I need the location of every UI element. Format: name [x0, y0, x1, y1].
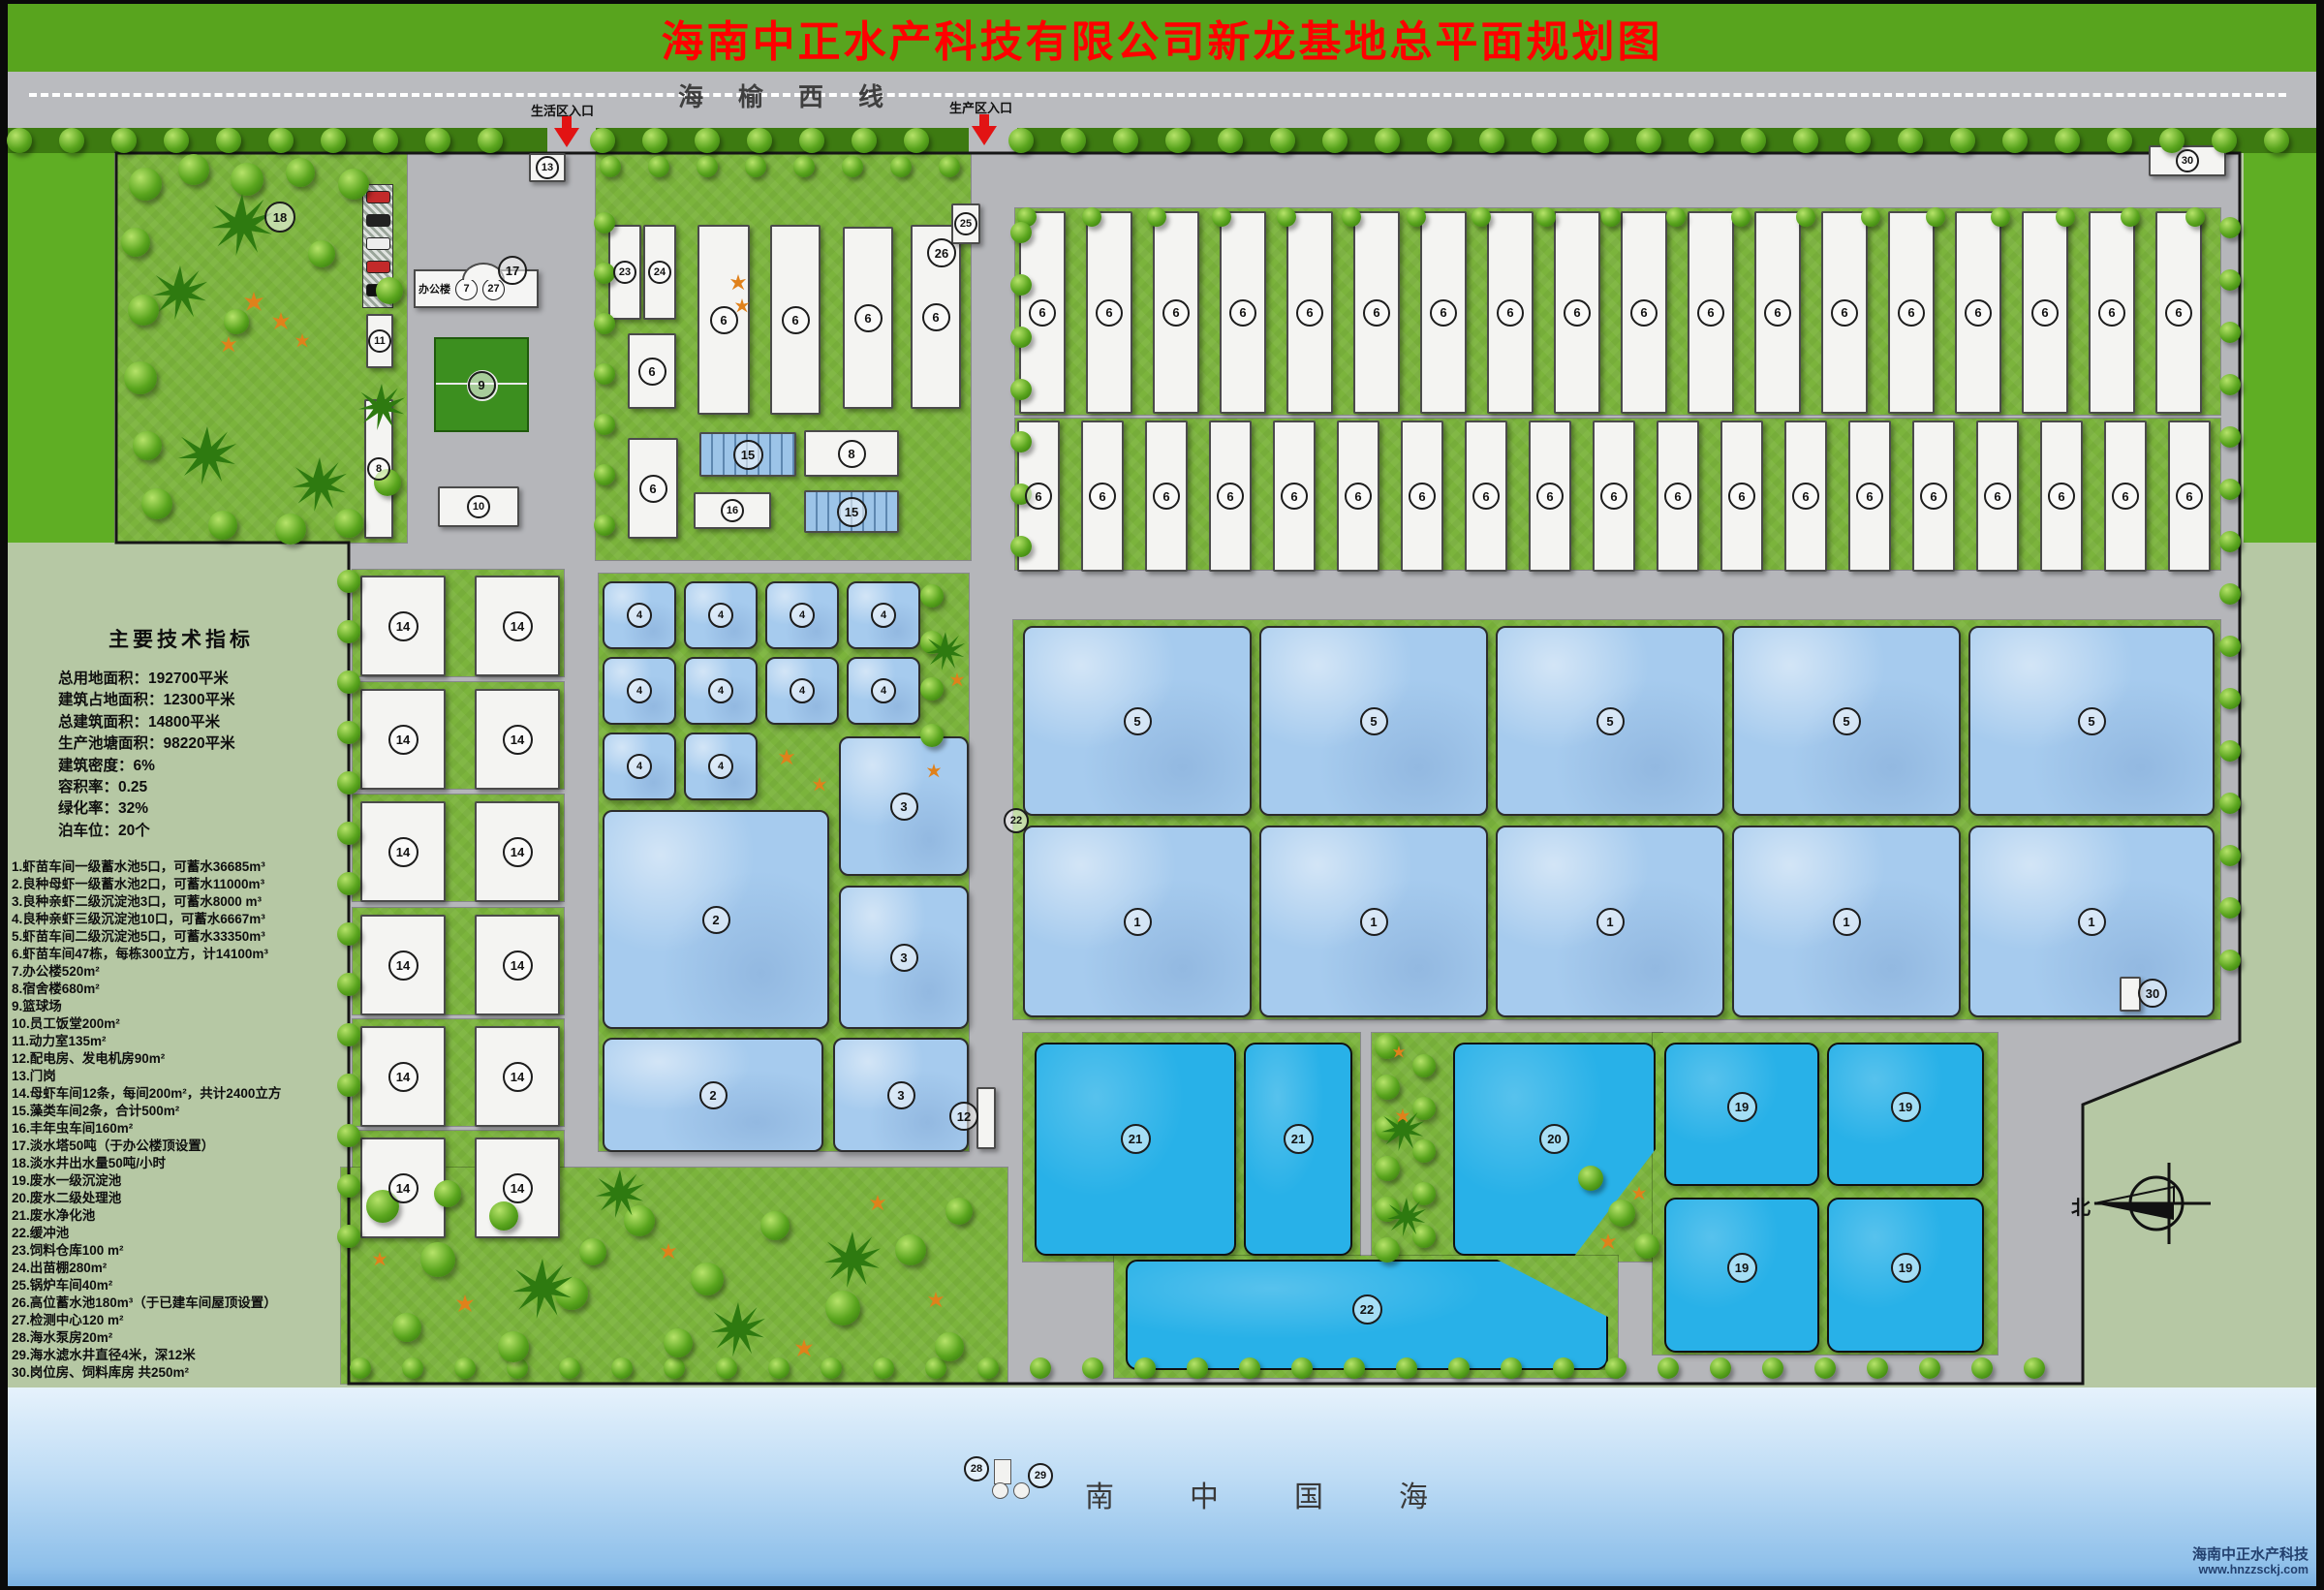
tree-icon — [1010, 327, 1032, 348]
tree-icon — [7, 128, 32, 153]
tree-icon — [664, 1328, 693, 1357]
tree-icon — [2219, 531, 2241, 552]
tree-icon — [1375, 1075, 1400, 1100]
entrance-left-arrow-icon — [554, 128, 579, 160]
tree-icon — [1501, 1357, 1522, 1379]
tree-icon — [2185, 207, 2205, 227]
tree-icon — [1396, 1357, 1417, 1379]
tree-icon — [594, 263, 615, 284]
feature-badge-1: 1 — [2078, 908, 2106, 936]
tree-icon — [1412, 1182, 1436, 1205]
feature-badge-4: 4 — [627, 678, 652, 703]
feature-badge-6: 6 — [1296, 299, 1323, 327]
feature-badge-3: 3 — [890, 793, 918, 821]
feature-badge-14: 14 — [388, 837, 418, 867]
compass-icon — [2073, 1155, 2218, 1252]
feature-badge-14: 14 — [388, 725, 418, 755]
tree-icon — [1950, 128, 1975, 153]
tree-icon — [59, 128, 84, 153]
feature-badge-30: 30 — [2138, 979, 2167, 1008]
tree-icon — [1291, 1357, 1313, 1379]
tree-icon — [2212, 128, 2237, 153]
tree-icon — [745, 156, 766, 177]
tech-spec-line: 总建筑面积：14800平米 — [58, 712, 349, 733]
feature-badge-9: 9 — [468, 371, 496, 399]
feature-badge-2: 2 — [702, 906, 730, 934]
tree-icon — [920, 724, 944, 747]
page-title: 海南中正水产科技有限公司新龙基地总平面规划图 — [662, 7, 1663, 69]
legend-item: 25.锅炉车间40m² — [12, 1277, 349, 1294]
feature-badge-14: 14 — [388, 611, 418, 641]
tree-icon — [425, 128, 450, 153]
feature-badge-6: 6 — [1497, 299, 1524, 327]
feature-badge-19: 19 — [1891, 1092, 1921, 1122]
tree-icon — [1845, 128, 1871, 153]
feature-badge-5: 5 — [1833, 707, 1861, 735]
feature-badge-4: 4 — [708, 603, 733, 628]
legend-item: 14.母虾车间12条，每间200m²，共计2400立方 — [12, 1085, 349, 1103]
tree-icon — [1010, 274, 1032, 296]
tree-icon — [1601, 207, 1621, 227]
feature-badge-6: 6 — [1856, 483, 1883, 510]
tree-icon — [1147, 207, 1166, 227]
tree-icon — [821, 1357, 842, 1379]
feature-badge-6: 6 — [1764, 299, 1791, 327]
feature-badge-6: 6 — [1029, 299, 1056, 327]
tree-icon — [178, 154, 209, 185]
tree-icon — [925, 1357, 946, 1379]
tree-icon — [164, 128, 189, 153]
tree-icon — [376, 277, 403, 304]
tree-icon — [2219, 793, 2241, 814]
tree-icon — [1427, 128, 1452, 153]
feature-badge-14: 14 — [388, 1062, 418, 1092]
tree-icon — [1375, 1237, 1400, 1263]
tree-icon — [1636, 128, 1661, 153]
feature-badge-3: 3 — [887, 1081, 915, 1109]
legend-item: 22.缓冲池 — [12, 1225, 349, 1242]
tree-icon — [1689, 128, 1714, 153]
feature-badge-14: 14 — [388, 1173, 418, 1203]
legend-item: 12.配电房、发电机房90m² — [12, 1050, 349, 1068]
tree-icon — [1448, 1357, 1470, 1379]
tree-icon — [1412, 1225, 1436, 1248]
tree-icon — [1134, 1357, 1156, 1379]
tree-icon — [842, 156, 863, 177]
company-brand: 海南中正水产科技 — [2192, 1546, 2309, 1563]
feature-badge-6: 6 — [638, 358, 666, 386]
seawater-pump-house — [994, 1459, 1011, 1484]
tree-icon — [945, 1198, 973, 1225]
feature-badge-6: 6 — [1898, 299, 1925, 327]
feature-badge-6: 6 — [1536, 483, 1564, 510]
feature-badge-21: 21 — [1121, 1124, 1151, 1154]
tree-icon — [747, 128, 772, 153]
tree-icon — [2121, 207, 2140, 227]
tree-icon — [1919, 1357, 1940, 1379]
tree-icon — [454, 1357, 476, 1379]
feature-badge-14: 14 — [503, 951, 533, 981]
tree-icon — [1710, 1357, 1731, 1379]
tree-icon — [642, 128, 667, 153]
car-icon — [366, 237, 390, 250]
tree-icon — [611, 1357, 633, 1379]
badge-27: 27 — [482, 278, 505, 300]
entrance-right-arrow-icon — [972, 126, 997, 158]
feature-badge-4: 4 — [708, 678, 733, 703]
feature-badge-6: 6 — [1281, 483, 1308, 510]
highway-center-line — [29, 93, 2286, 97]
feature-badge-6: 6 — [922, 303, 950, 331]
feature-badge-6: 6 — [2112, 483, 2139, 510]
tree-icon — [1479, 128, 1504, 153]
tree-icon — [873, 1357, 894, 1379]
legend-item: 19.废水一级沉淀池 — [12, 1172, 349, 1190]
tree-icon — [1082, 207, 1101, 227]
legend-item: 11.动力室135m² — [12, 1033, 349, 1050]
tree-icon — [129, 168, 162, 201]
tree-icon — [1793, 128, 1818, 153]
feature-badge-23: 23 — [613, 261, 636, 284]
feature-badge-2: 2 — [699, 1081, 728, 1109]
legend-item: 8.宿舍楼680m² — [12, 981, 349, 998]
tree-icon — [2219, 479, 2241, 500]
feature-badge-6: 6 — [1792, 483, 1819, 510]
tree-icon — [2219, 897, 2241, 919]
tree-icon — [2219, 322, 2241, 343]
feature-badge-4: 4 — [871, 678, 896, 703]
tree-icon — [895, 1234, 926, 1265]
tree-icon — [2219, 269, 2241, 291]
tree-icon — [1608, 1200, 1635, 1227]
legend-item: 28.海水泵房20m² — [12, 1329, 349, 1347]
tree-icon — [1605, 1357, 1627, 1379]
sea-label: 南中国海 — [1085, 1473, 1503, 1515]
feature-badge-6: 6 — [1409, 483, 1436, 510]
tree-icon — [224, 309, 249, 334]
feature-badge-6: 6 — [1096, 299, 1123, 327]
legend-item: 6.虾苗车间47栋，每栋300立方，计14100m³ — [12, 946, 349, 963]
legend-item: 23.饲料仓库100 m² — [12, 1242, 349, 1260]
tree-icon — [1926, 207, 1945, 227]
tech-specs-lines: 总用地面积：192700平米建筑占地面积：12300平米总建筑面积：14800平… — [58, 669, 349, 842]
tree-icon — [1578, 1166, 1603, 1191]
feature-badge-4: 4 — [627, 754, 652, 779]
feature-badge-29: 29 — [1028, 1463, 1053, 1488]
tree-icon — [121, 228, 150, 257]
highway-label: 海榆西线 — [678, 78, 918, 113]
legend-item: 26.高位蓄水池180m³（于已建车间屋顶设置） — [12, 1294, 349, 1312]
tree-icon — [1239, 1357, 1260, 1379]
tree-icon — [1532, 128, 1557, 153]
feature-badge-4: 4 — [627, 603, 652, 628]
legend-item: 10.员工饭堂200m² — [12, 1015, 349, 1033]
feature-badge-6: 6 — [1564, 299, 1591, 327]
feature-badge-4: 4 — [871, 603, 896, 628]
feature-badge-18: 18 — [264, 202, 295, 233]
highway — [8, 72, 2316, 128]
tree-icon — [1187, 1357, 1208, 1379]
feature-badge-8: 8 — [367, 457, 390, 481]
feature-badge-6: 6 — [1162, 299, 1190, 327]
feature-badge-1: 1 — [1360, 908, 1388, 936]
feature-badge-14: 14 — [503, 837, 533, 867]
tree-icon — [124, 361, 157, 394]
tree-icon — [1010, 379, 1032, 400]
feature-badge-15: 15 — [733, 440, 763, 470]
tree-icon — [691, 1263, 724, 1295]
feature-badge-6: 6 — [1430, 299, 1457, 327]
tree-icon — [2264, 128, 2289, 153]
tree-icon — [2219, 374, 2241, 395]
tree-icon — [1861, 207, 1880, 227]
legend-item: 29.海水滤水井直径4米，深12米 — [12, 1347, 349, 1364]
tree-icon — [1762, 1357, 1783, 1379]
tech-specs-title: 主要技术指标 — [108, 624, 349, 653]
tree-icon — [594, 514, 615, 536]
feature-badge-15: 15 — [837, 497, 867, 527]
feature-badge-6: 6 — [1728, 483, 1755, 510]
legend-item: 17.淡水塔50吨（于办公楼顶设置） — [12, 1138, 349, 1155]
legend-item: 27.检测中心120 m² — [12, 1312, 349, 1329]
feature-badge-28: 28 — [964, 1456, 989, 1481]
tree-icon — [268, 128, 294, 153]
feature-badge-6: 6 — [1664, 483, 1691, 510]
tree-icon — [1322, 128, 1348, 153]
feature-badge-6: 6 — [2176, 483, 2203, 510]
watermark: 海南中正水产科技 www.hnzzsckj.com — [2192, 1546, 2309, 1577]
car-icon — [366, 261, 390, 273]
tree-icon — [2219, 426, 2241, 448]
feature-badge-20: 20 — [1539, 1124, 1569, 1154]
tree-icon — [2107, 128, 2132, 153]
feature-badge-19: 19 — [1727, 1253, 1757, 1283]
tree-icon — [559, 1357, 580, 1379]
lawn — [8, 153, 114, 543]
legend-item: 4.良种亲虾三级沉淀池10口，可蓄水6667m³ — [12, 911, 349, 928]
tech-spec-line: 建筑密度：6% — [58, 756, 349, 777]
feature-badge-6: 6 — [1965, 299, 1992, 327]
feature-badge-6: 6 — [2048, 483, 2075, 510]
tree-icon — [1412, 1139, 1436, 1163]
legend-item: 3.良种亲虾二级沉淀池3口，可蓄水8000 m³ — [12, 893, 349, 911]
tree-icon — [648, 156, 669, 177]
tree-icon — [373, 128, 398, 153]
company-website: www.hnzzsckj.com — [2192, 1563, 2309, 1576]
tree-icon — [434, 1180, 461, 1207]
tree-icon — [716, 1357, 737, 1379]
tree-icon — [337, 570, 360, 593]
feature-badge-1: 1 — [1124, 908, 1152, 936]
tree-icon — [594, 313, 615, 334]
feature-badge-6: 6 — [1345, 483, 1372, 510]
feature-badge-6: 6 — [1984, 483, 2011, 510]
compass-north-label: 北 — [2071, 1192, 2091, 1220]
lawn — [2244, 153, 2316, 543]
tree-icon — [2055, 128, 2080, 153]
feature-badge-21: 21 — [1284, 1124, 1314, 1154]
feature-badge-30: 30 — [2176, 149, 2199, 172]
tree-icon — [977, 1357, 999, 1379]
legend-item: 9.篮球场 — [12, 998, 349, 1015]
tree-icon — [1277, 207, 1296, 227]
legend-item: 16.丰年虫车间160m² — [12, 1120, 349, 1138]
seawater-filter-well — [992, 1482, 1008, 1499]
legend-item: 5.虾苗车间二级沉淀池5口，可蓄水33350m³ — [12, 928, 349, 946]
feature-badge-16: 16 — [721, 499, 744, 522]
feature-badge-24: 24 — [648, 261, 671, 284]
legend-item: 13.门岗 — [12, 1068, 349, 1085]
feature-badge-10: 10 — [467, 495, 490, 518]
tree-icon — [799, 128, 824, 153]
feature-badge-4: 4 — [708, 754, 733, 779]
tree-icon — [1814, 1357, 1836, 1379]
tree-icon — [594, 363, 615, 385]
feature-badge-6: 6 — [1831, 299, 1858, 327]
tree-icon — [308, 240, 335, 267]
tree-icon — [1082, 1357, 1103, 1379]
feature-badge-11: 11 — [368, 329, 391, 353]
title-banner: 海南中正水产科技有限公司新龙基地总平面规划图 — [8, 4, 2316, 72]
feature-badge-26: 26 — [927, 238, 956, 267]
tree-icon — [594, 464, 615, 485]
tree-icon — [1342, 207, 1361, 227]
feature-badge-12: 12 — [949, 1102, 978, 1131]
tree-icon — [1010, 431, 1032, 452]
tree-icon — [1270, 128, 1295, 153]
tree-icon — [920, 677, 944, 701]
tree-icon — [852, 128, 877, 153]
feature-badge-14: 14 — [388, 951, 418, 981]
legend-item: 24.出苗棚280m² — [12, 1260, 349, 1277]
tree-icon — [793, 156, 815, 177]
tree-icon — [1061, 128, 1086, 153]
tree-icon — [216, 128, 241, 153]
tree-icon — [275, 514, 306, 545]
tree-icon — [286, 158, 315, 187]
building — [976, 1087, 996, 1149]
badge-7: 7 — [455, 278, 478, 300]
tree-icon — [590, 128, 615, 153]
tree-icon — [498, 1331, 529, 1362]
tech-spec-line: 建筑占地面积：12300平米 — [58, 690, 349, 711]
tree-icon — [1375, 1156, 1400, 1181]
tree-icon — [1971, 1357, 1993, 1379]
tree-icon — [1741, 128, 1766, 153]
tree-icon — [1412, 1054, 1436, 1077]
feature-badge-14: 14 — [503, 725, 533, 755]
tech-spec-line: 容积率：0.25 — [58, 777, 349, 798]
tree-icon — [350, 1357, 371, 1379]
tree-icon — [594, 414, 615, 435]
tree-icon — [695, 128, 720, 153]
tree-icon — [2219, 740, 2241, 762]
feature-badge-5: 5 — [1360, 707, 1388, 735]
tree-icon — [338, 169, 369, 200]
feature-badge-6: 6 — [1920, 483, 1947, 510]
feature-badge-19: 19 — [1727, 1092, 1757, 1122]
tree-icon — [1010, 536, 1032, 557]
feature-badge-17: 17 — [498, 256, 527, 285]
feature-badge-14: 14 — [503, 611, 533, 641]
feature-badge-6: 6 — [1025, 483, 1052, 510]
tree-icon — [208, 511, 237, 540]
feature-badge-6: 6 — [854, 304, 883, 332]
tree-icon — [2024, 1357, 2045, 1379]
tree-icon — [904, 128, 929, 153]
feature-badge-19: 19 — [1891, 1253, 1921, 1283]
legend-panel: 1.虾苗车间一级蓄水池5口，可蓄水36685m³2.良种母虾一级蓄水池2口，可蓄… — [12, 858, 349, 1382]
tree-icon — [2056, 207, 2075, 227]
tree-icon — [890, 156, 912, 177]
feature-badge-6: 6 — [1217, 483, 1244, 510]
feature-badge-6: 6 — [1229, 299, 1256, 327]
tree-icon — [2002, 128, 2028, 153]
legend-item: 7.办公楼520m² — [12, 963, 349, 981]
tree-icon — [1113, 128, 1138, 153]
tree-icon — [1991, 207, 2010, 227]
tree-icon — [1898, 128, 1923, 153]
feature-badge-6: 6 — [1363, 299, 1390, 327]
legend-item: 21.废水净化池 — [12, 1207, 349, 1225]
feature-badge-8: 8 — [838, 440, 866, 468]
tree-icon — [1008, 128, 1034, 153]
feature-badge-1: 1 — [1833, 908, 1861, 936]
tree-icon — [402, 1357, 423, 1379]
tree-icon — [1658, 1357, 1679, 1379]
car-icon — [366, 191, 390, 203]
tree-icon — [2219, 845, 2241, 866]
tree-icon — [697, 156, 718, 177]
tree-icon — [2219, 583, 2241, 605]
tech-specs-panel: 主要技术指标 总用地面积：192700平米建筑占地面积：12300平米总建筑面积… — [58, 624, 349, 842]
tree-icon — [1666, 207, 1686, 227]
tree-icon — [2219, 688, 2241, 709]
tree-icon — [2159, 128, 2185, 153]
tree-icon — [2219, 636, 2241, 657]
feature-badge-6: 6 — [2165, 299, 2192, 327]
tree-icon — [2219, 950, 2241, 971]
tree-icon — [600, 156, 621, 177]
tree-icon — [939, 156, 960, 177]
tree-icon — [920, 584, 944, 608]
feature-badge-4: 4 — [790, 678, 815, 703]
tree-icon — [1553, 1357, 1574, 1379]
tree-icon — [1407, 207, 1426, 227]
feature-badge-25: 25 — [954, 212, 977, 235]
tree-icon — [334, 509, 363, 538]
feature-badge-6: 6 — [639, 475, 667, 503]
tree-icon — [1165, 128, 1191, 153]
tech-spec-line: 生产池塘面积：98220平米 — [58, 733, 349, 755]
tree-icon — [489, 1201, 518, 1231]
tree-icon — [478, 128, 503, 153]
tree-icon — [1796, 207, 1815, 227]
tree-icon — [1375, 128, 1400, 153]
tree-icon — [760, 1211, 790, 1240]
feature-badge-6: 6 — [1600, 483, 1627, 510]
tree-icon — [321, 128, 346, 153]
tree-icon — [2219, 217, 2241, 238]
legend-item: 18.淡水井出水量50吨/小时 — [12, 1155, 349, 1172]
tree-icon — [1731, 207, 1751, 227]
feature-badge-5: 5 — [2078, 707, 2106, 735]
tree-icon — [128, 295, 159, 326]
feature-badge-22: 22 — [1004, 808, 1029, 833]
tree-icon — [133, 431, 162, 460]
tree-icon — [420, 1242, 455, 1277]
tree-icon — [111, 128, 137, 153]
